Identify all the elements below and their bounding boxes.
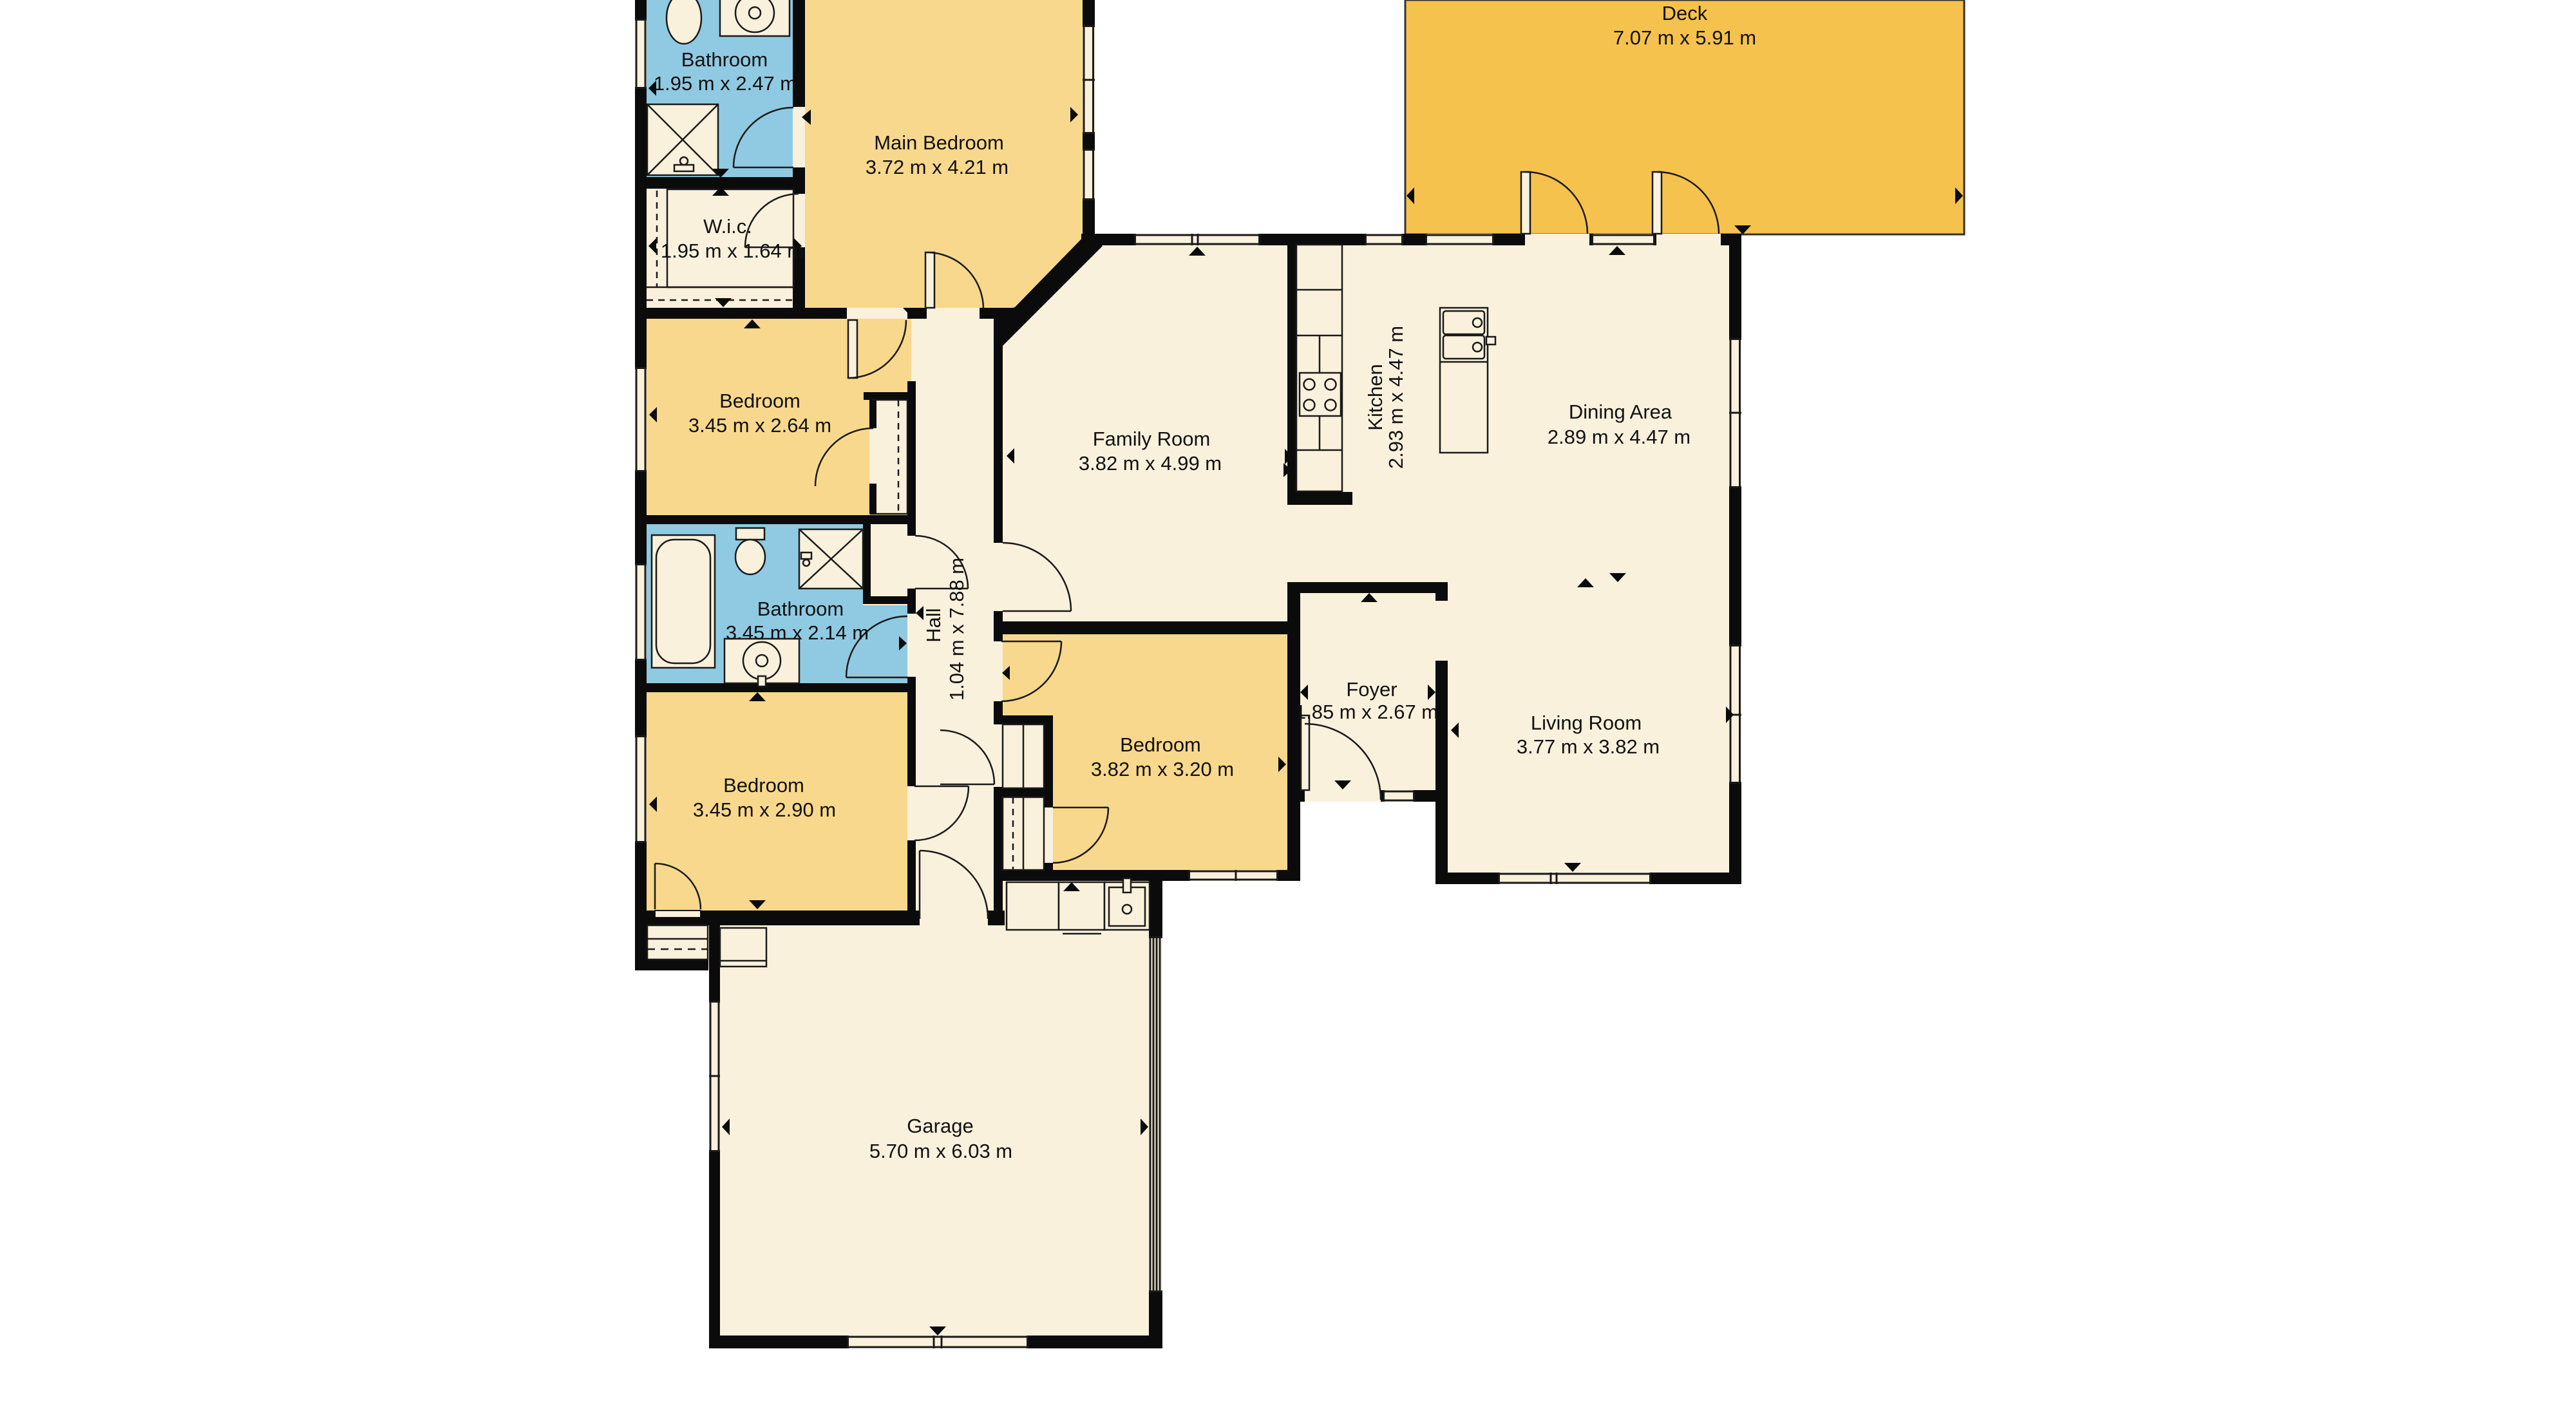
svg-text:3.77 m x 3.82 m: 3.77 m x 3.82 m xyxy=(1517,735,1660,758)
svg-text:7.07 m x 5.91 m: 7.07 m x 5.91 m xyxy=(1613,26,1756,49)
svg-text:5.70 m x 6.03 m: 5.70 m x 6.03 m xyxy=(869,1140,1012,1162)
svg-text:Garage: Garage xyxy=(907,1115,973,1137)
svg-text:3.45 m x 2.64 m: 3.45 m x 2.64 m xyxy=(688,414,831,437)
svg-text:1.95 m x 2.47 m: 1.95 m x 2.47 m xyxy=(654,72,797,95)
svg-text:3.72 m x 4.21 m: 3.72 m x 4.21 m xyxy=(866,156,1009,178)
svg-text:Foyer: Foyer xyxy=(1346,678,1397,701)
svg-text:Bedroom: Bedroom xyxy=(723,774,804,797)
svg-text:2.93 m x 4.47 m: 2.93 m x 4.47 m xyxy=(1385,326,1407,469)
svg-text:1.95 m x 1.64 m: 1.95 m x 1.64 m xyxy=(661,240,804,262)
svg-text:Living Room: Living Room xyxy=(1531,712,1642,734)
svg-text:Bathroom: Bathroom xyxy=(757,598,844,620)
svg-text:Deck: Deck xyxy=(1662,2,1708,24)
svg-text:3.45 m x 2.14 m: 3.45 m x 2.14 m xyxy=(726,621,869,644)
svg-text:Bedroom: Bedroom xyxy=(1120,733,1201,756)
svg-text:Bedroom: Bedroom xyxy=(719,390,800,412)
svg-text:Kitchen: Kitchen xyxy=(1364,364,1387,430)
svg-text:Hall: Hall xyxy=(922,608,945,642)
svg-text:3.45 m x 2.90 m: 3.45 m x 2.90 m xyxy=(693,798,836,821)
svg-text:Main Bedroom: Main Bedroom xyxy=(874,131,1004,154)
svg-text:Family Room: Family Room xyxy=(1093,428,1211,450)
svg-text:3.82 m x 3.20 m: 3.82 m x 3.20 m xyxy=(1091,758,1234,780)
svg-text:2.89 m x 4.47 m: 2.89 m x 4.47 m xyxy=(1548,426,1690,448)
svg-text:Bathroom: Bathroom xyxy=(681,48,768,71)
svg-text:1.04 m x 7.88 m: 1.04 m x 7.88 m xyxy=(945,558,968,701)
svg-text:W.i.c.: W.i.c. xyxy=(703,215,752,238)
svg-text:Dining Area: Dining Area xyxy=(1569,401,1672,423)
svg-text:1.85 m x 2.67 m: 1.85 m x 2.67 m xyxy=(1295,701,1438,723)
svg-text:3.82 m x 4.99 m: 3.82 m x 4.99 m xyxy=(1079,452,1222,475)
